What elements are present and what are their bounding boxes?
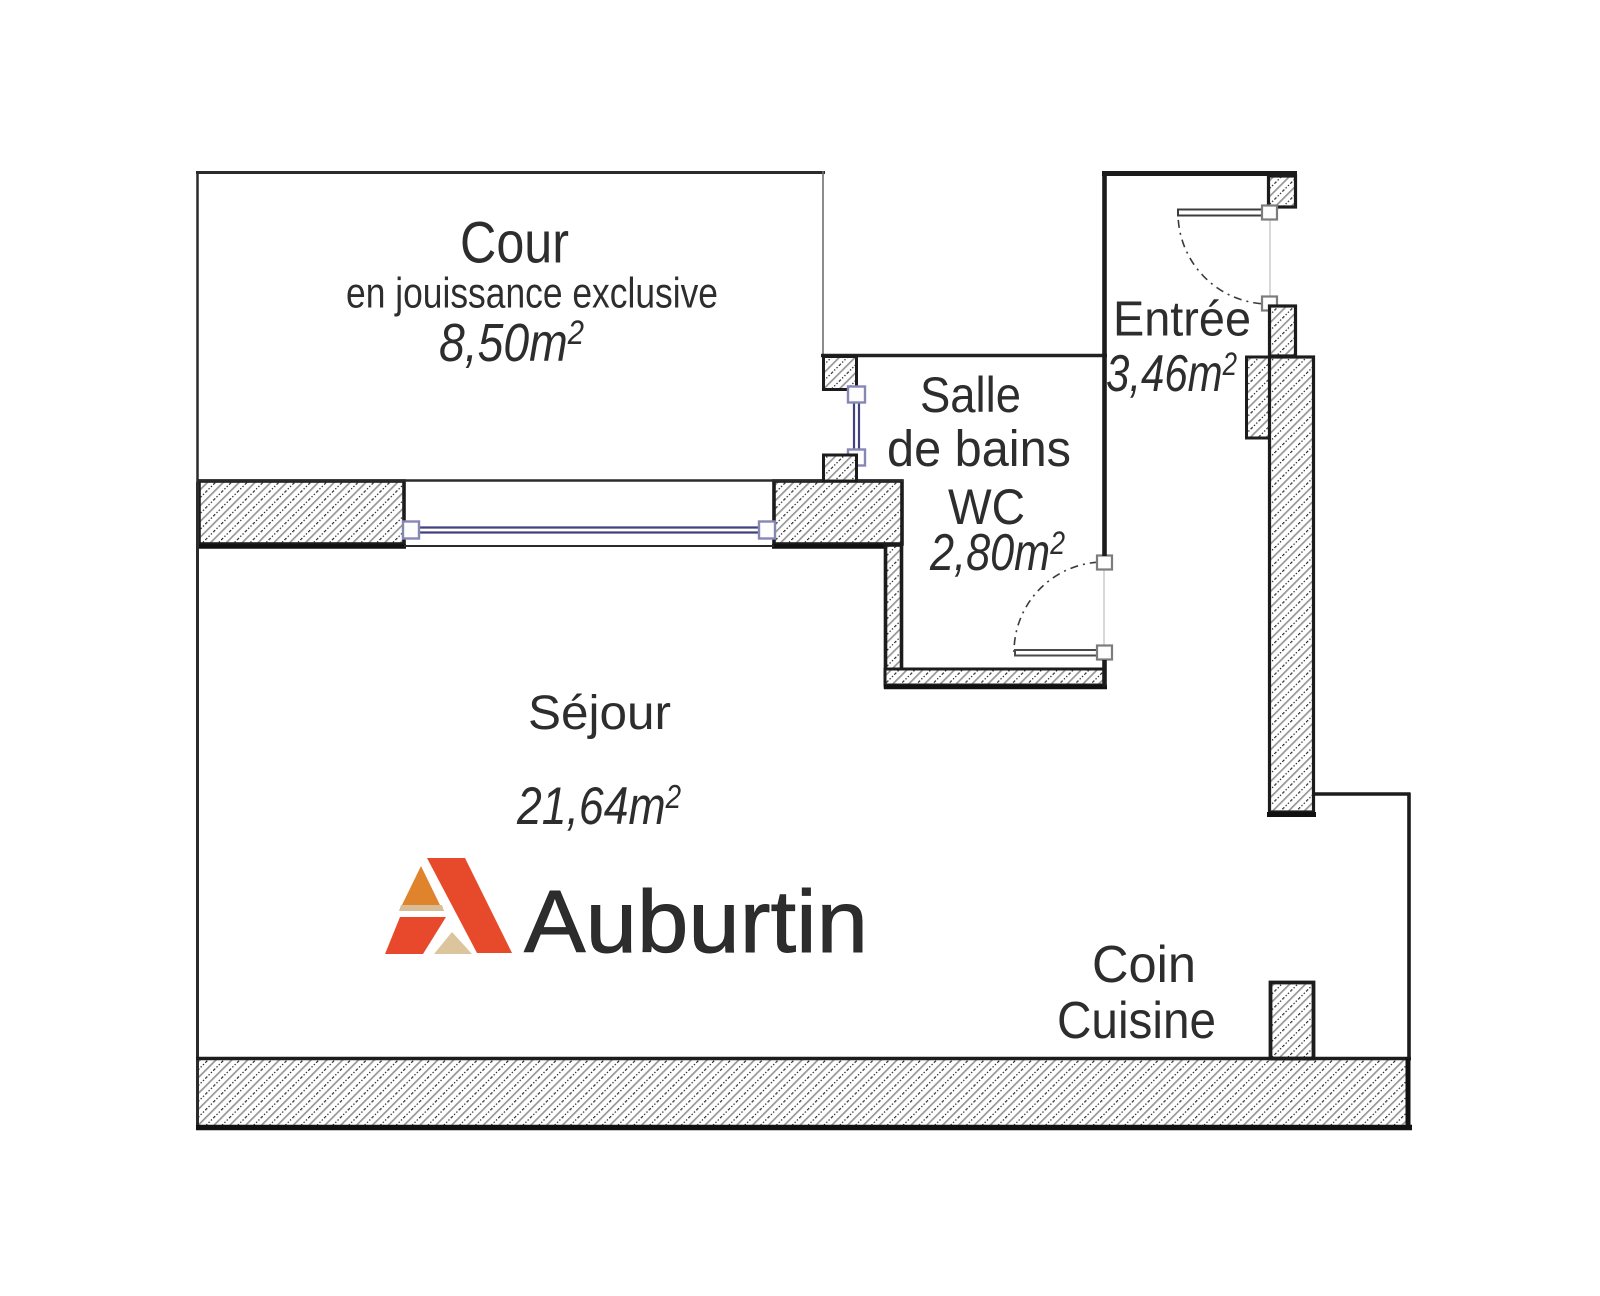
svg-text:21,64m2: 21,64m2 (516, 777, 681, 836)
svg-text:Coin: Coin (1092, 936, 1196, 994)
svg-text:Cour: Cour (460, 211, 569, 276)
svg-text:8,50m2: 8,50m2 (439, 313, 584, 373)
svg-text:en jouissance exclusive: en jouissance exclusive (346, 270, 718, 318)
svg-text:Séjour: Séjour (528, 687, 671, 740)
svg-text:2,80m2: 2,80m2 (929, 524, 1065, 582)
svg-text:de bains: de bains (887, 420, 1071, 477)
svg-text:Cuisine: Cuisine (1057, 992, 1216, 1050)
svg-text:3,46m2: 3,46m2 (1106, 345, 1237, 403)
svg-text:Entrée: Entrée (1113, 293, 1251, 347)
svg-text:Auburtin: Auburtin (524, 872, 868, 971)
svg-text:Salle: Salle (920, 367, 1021, 423)
